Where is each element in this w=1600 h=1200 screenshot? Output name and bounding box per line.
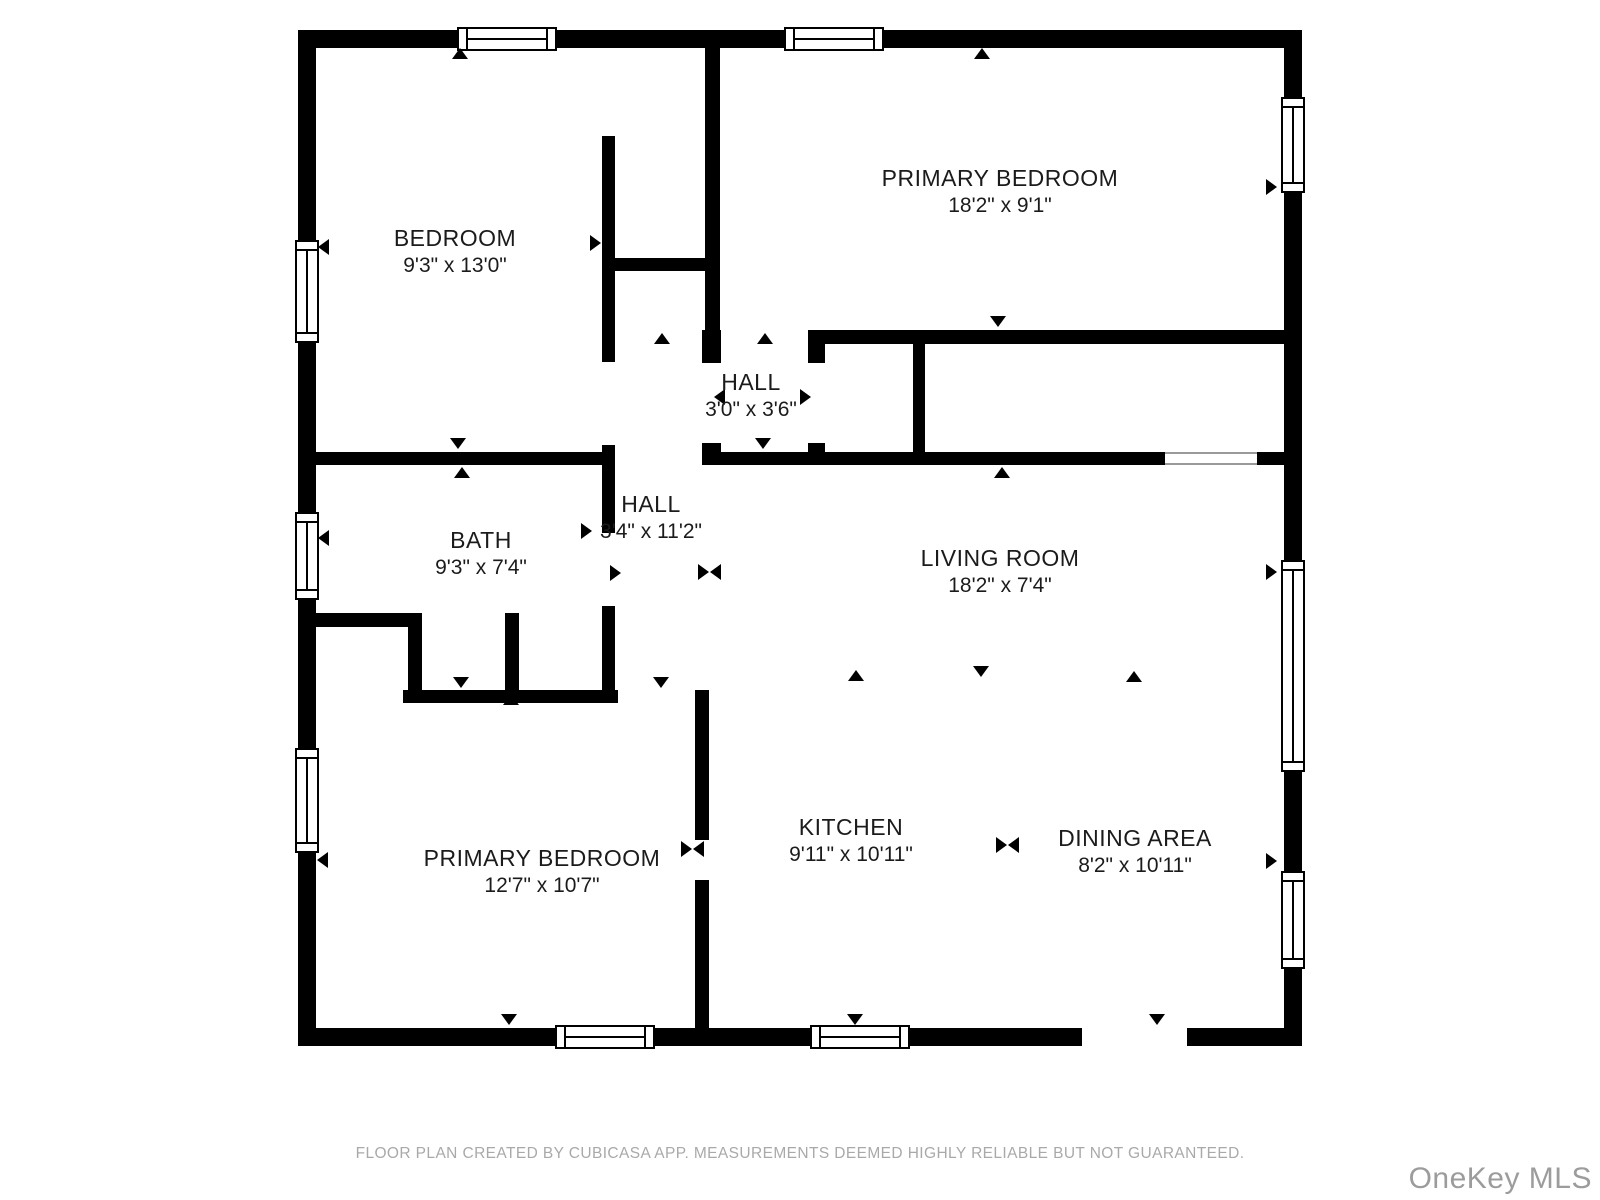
room-label-hall-small: HALL 3'0" x 3'6" <box>551 368 951 424</box>
room-boundary-arrow <box>698 564 709 580</box>
onekey-mls-watermark: OneKey MLS <box>1409 1162 1592 1196</box>
room-name: HALL <box>551 368 951 396</box>
window-bedroom-top <box>457 27 557 51</box>
wall-living-top <box>702 452 1165 465</box>
room-dimensions: 3'0" x 3'6" <box>551 396 951 424</box>
room-dimensions: 9'3" x 7'4" <box>281 554 681 582</box>
footer-disclaimer: FLOOR PLAN CREATED BY CUBICASA APP. MEAS… <box>0 1145 1600 1163</box>
door-arrow <box>454 467 470 478</box>
room-boundary-arrow <box>973 666 989 677</box>
opening-dining-patio <box>1082 1027 1187 1047</box>
room-dimensions: 9'3" x 13'0" <box>255 252 655 280</box>
wall-primarybed-bottom-stub <box>702 330 721 344</box>
door-arrow <box>755 438 771 449</box>
wall-bedroom-hall-lower <box>602 606 615 693</box>
room-name: DINING AREA <box>935 824 1335 852</box>
wall-closet-h <box>316 613 422 627</box>
door-arrow <box>501 1014 517 1025</box>
window-living-right <box>1281 560 1305 772</box>
door-arrow <box>653 677 669 688</box>
door-arrow <box>847 1014 863 1025</box>
door-arrow <box>503 694 519 705</box>
wall-topcloset-right <box>705 48 720 258</box>
room-name: BEDROOM <box>255 224 655 252</box>
wall-primarybed-bottom <box>808 330 1284 344</box>
wall-bedroom2-kitchen-b <box>695 880 709 1028</box>
wall-bath-top <box>316 452 615 465</box>
room-boundary-arrow <box>848 670 864 681</box>
room-name: HALL <box>451 490 851 518</box>
room-label-dining-area: DINING AREA 8'2" x 10'11" <box>935 824 1335 880</box>
window-kitchen-bottom <box>810 1025 910 1049</box>
room-dimensions: 18'2" x 9'1" <box>800 192 1200 220</box>
door-arrow <box>757 333 773 344</box>
room-dimensions: 3'4" x 11'2" <box>451 518 851 546</box>
door-arrow <box>452 48 468 59</box>
wall-smallhall-left-a <box>702 344 721 363</box>
door-arrow <box>317 852 328 868</box>
room-boundary-arrow <box>1126 671 1142 682</box>
room-label-hall-tall: HALL 3'4" x 11'2" <box>451 490 851 546</box>
door-arrow <box>1149 1014 1165 1025</box>
door-arrow <box>450 438 466 449</box>
room-name: PRIMARY BEDROOM <box>800 164 1200 192</box>
window-dining-right <box>1281 871 1305 969</box>
room-label-bedroom: BEDROOM 9'3" x 13'0" <box>255 224 655 280</box>
door-arrow <box>974 48 990 59</box>
door-arrow <box>654 333 670 344</box>
floor-plan-canvas: BEDROOM 9'3" x 13'0" PRIMARY BEDROOM 18'… <box>0 0 1600 1200</box>
window-bedroom2-left <box>295 748 319 853</box>
window-bedroom2-bottom <box>555 1025 655 1049</box>
door-arrow <box>1266 179 1277 195</box>
wall-smallhall-right-a <box>808 344 825 363</box>
opening-living-closet <box>1165 452 1257 465</box>
door-arrow <box>1266 564 1277 580</box>
door-arrow <box>994 467 1010 478</box>
room-dimensions: 12'7" x 10'7" <box>342 872 742 900</box>
wall-living-top-stub <box>1257 452 1284 465</box>
door-arrow <box>453 677 469 688</box>
window-primarybed-top <box>784 27 884 51</box>
door-arrow <box>990 316 1006 327</box>
room-dimensions: 8'2" x 10'11" <box>935 852 1335 880</box>
room-label-living-room: LIVING ROOM 18'2" x 7'4" <box>800 544 1200 600</box>
room-label-primary-bedroom: PRIMARY BEDROOM 18'2" x 9'1" <box>800 164 1200 220</box>
window-primarybed-right <box>1281 97 1305 193</box>
wall-closet-v2 <box>505 613 519 690</box>
room-boundary-arrow <box>710 564 721 580</box>
room-dimensions: 18'2" x 7'4" <box>800 572 1200 600</box>
room-name: LIVING ROOM <box>800 544 1200 572</box>
wall-closet-v1 <box>408 627 422 690</box>
